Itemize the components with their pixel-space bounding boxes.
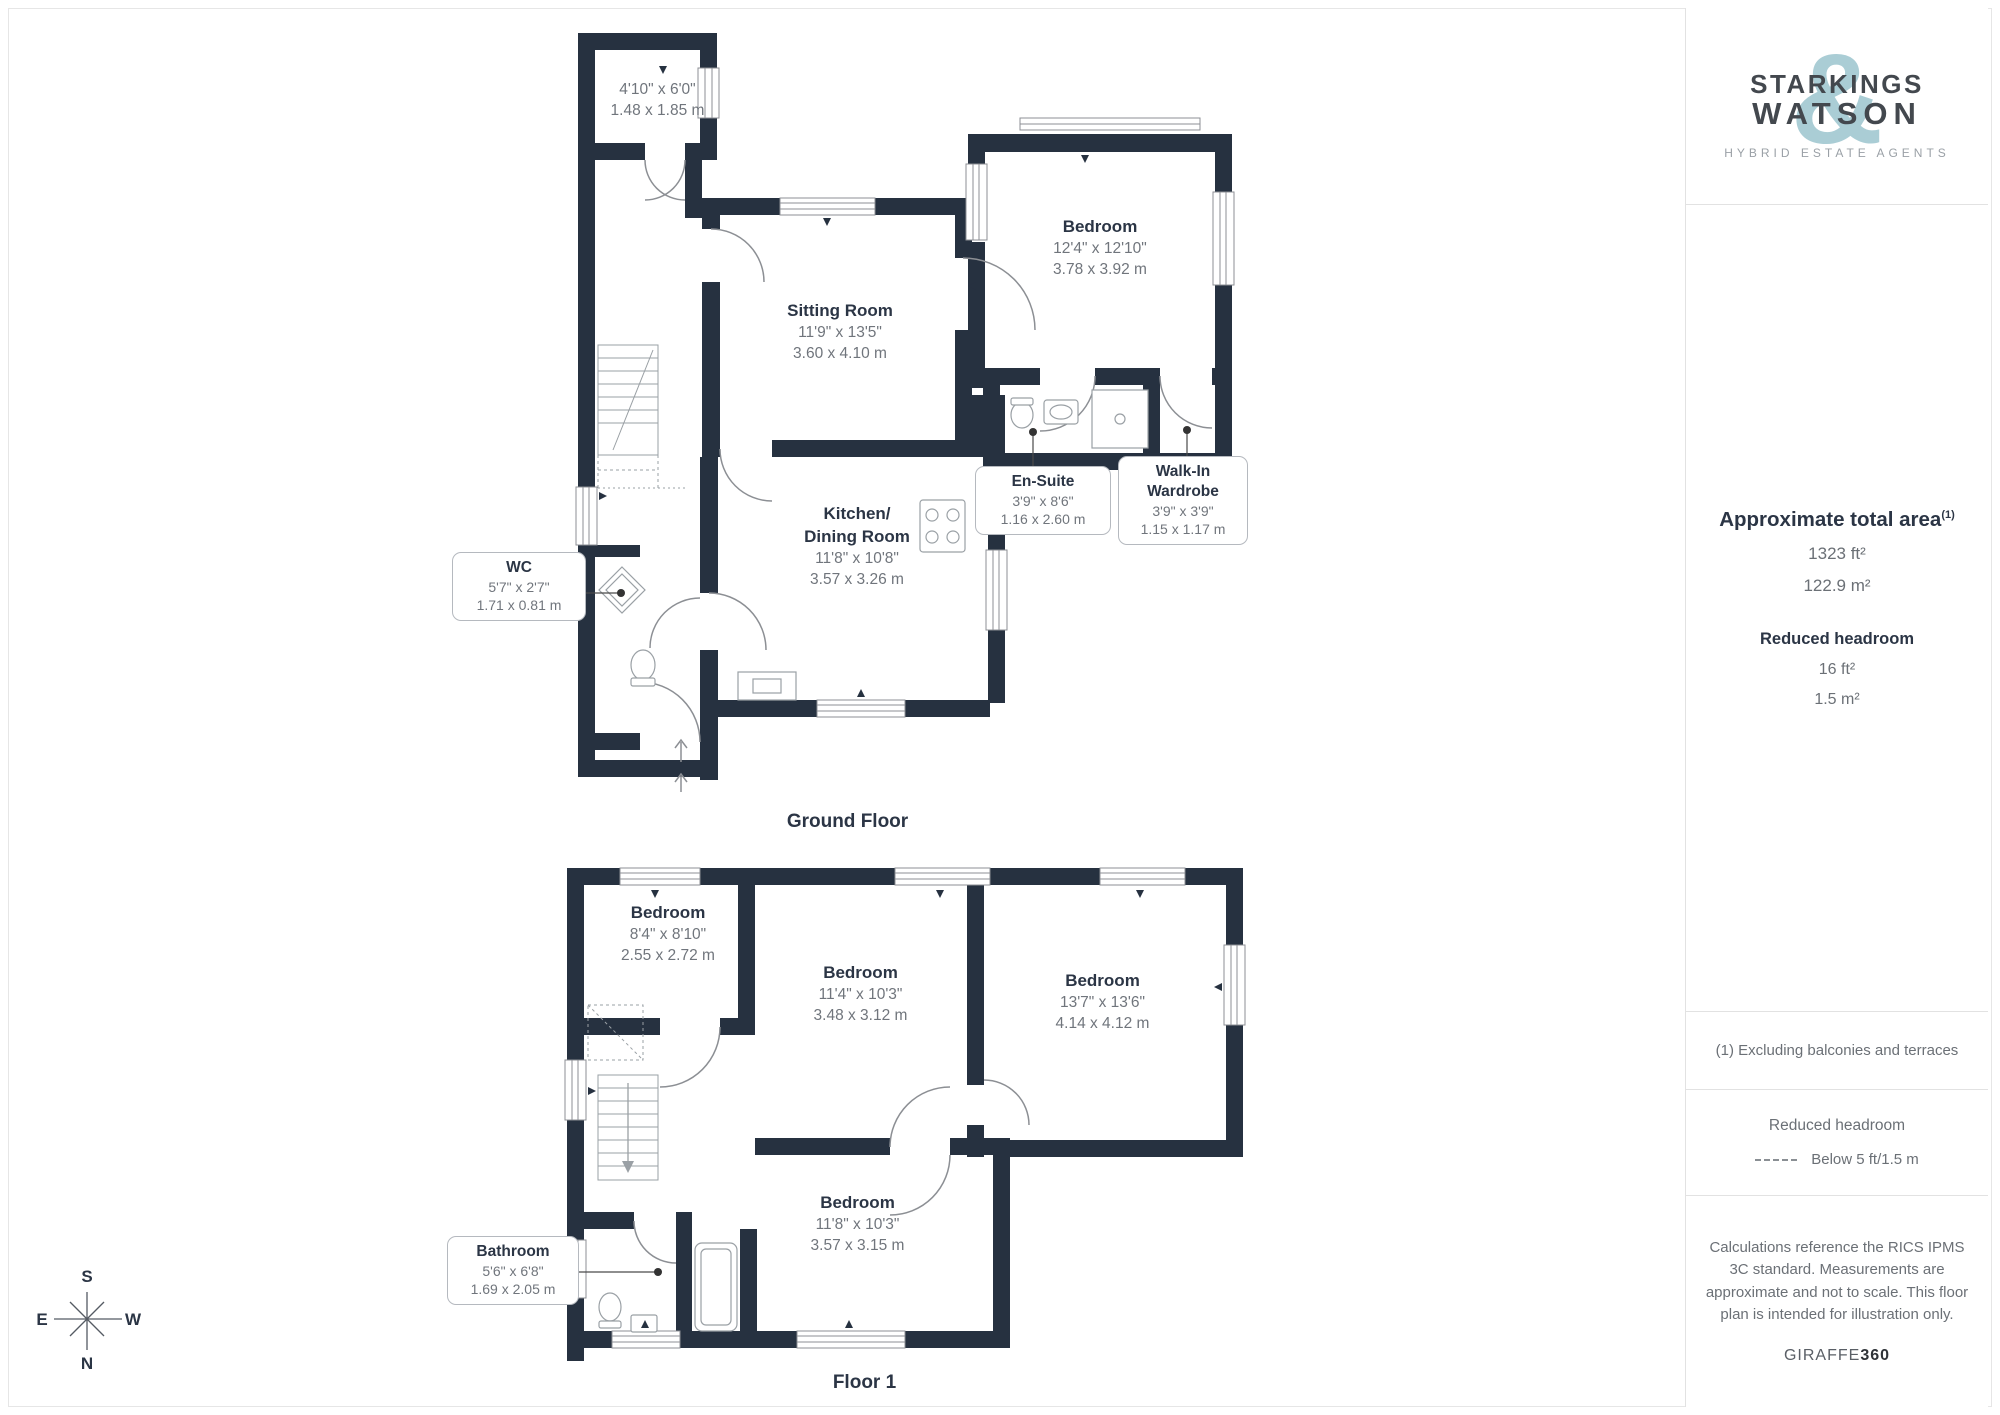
reduced-headroom-ft: 16 ft² — [1819, 661, 1855, 679]
ground-floor-plan — [565, 20, 1245, 795]
callout-en-suite: En-Suite 3'9" x 8'6" 1.16 x 2.60 m — [975, 466, 1111, 535]
legend-title: Reduced headroom — [1769, 1117, 1905, 1135]
staircase — [598, 345, 685, 488]
disclaimer-text: Calculations reference the RICS IPMS 3C … — [1701, 1237, 1973, 1327]
logo-line-2: WATSON — [1707, 96, 1967, 132]
compass-e: E — [36, 1310, 47, 1329]
disclaimer-section: Calculations reference the RICS IPMS 3C … — [1686, 1196, 1988, 1405]
footnote-section: (1) Excluding balconies and terraces — [1686, 1012, 1988, 1090]
compass-s: S — [81, 1267, 92, 1286]
area-ft: 1323 ft² — [1808, 544, 1866, 564]
legend-value: Below 5 ft/1.5 m — [1811, 1151, 1919, 1168]
room-label-bedroom-right: Bedroom 13'7" x 13'6" 4.14 x 4.12 m — [1010, 970, 1195, 1035]
callout-wc: WC 5'7" x 2'7" 1.71 x 0.81 m — [452, 552, 586, 621]
info-sidebar: & STARKINGS WATSON HYBRID ESTATE AGENTS … — [1685, 8, 1988, 1407]
logo-tagline: HYBRID ESTATE AGENTS — [1707, 146, 1967, 160]
area-title: Approximate total area(1) — [1719, 508, 1955, 532]
legend-row: Below 5 ft/1.5 m — [1755, 1151, 1919, 1168]
callout-walk-in-wardrobe: Walk-In Wardrobe 3'9" x 3'9" 1.15 x 1.17… — [1118, 456, 1248, 545]
fixtures — [599, 1243, 737, 1332]
area-section: Approximate total area(1) 1323 ft² 122.9… — [1686, 205, 1988, 1012]
reduced-headroom-m: 1.5 m² — [1814, 691, 1859, 709]
agency-logo: & STARKINGS WATSON HYBRID ESTATE AGENTS — [1707, 31, 1967, 181]
giraffe360-brand: GIRAFFE360 — [1784, 1347, 1890, 1365]
room-label-sitting-room: Sitting Room 11'9" x 13'5" 3.60 x 4.10 m — [745, 300, 935, 365]
compass-rose: S E W N — [30, 1262, 144, 1376]
room-label-kitchen: Kitchen/ Dining Room 11'8" x 10'8" 3.57 … — [762, 503, 952, 591]
room-label-bedroom-gf: Bedroom 12'4" x 12'10" 3.78 x 3.92 m — [1005, 216, 1195, 281]
floor-1-title: Floor 1 — [762, 1372, 967, 1394]
area-m: 122.9 m² — [1803, 576, 1870, 596]
area-footnote-ref: (1) — [1941, 509, 1954, 521]
room-label-store: 4'10" x 6'0" 1.48 x 1.85 m — [575, 80, 740, 122]
reduced-headroom-title: Reduced headroom — [1760, 630, 1914, 649]
footnote-text: (1) Excluding balconies and terraces — [1716, 1042, 1959, 1059]
callout-bathroom: Bathroom 5'6" x 6'8" 1.69 x 2.05 m — [447, 1236, 579, 1305]
room-label-bedroom-small: Bedroom 8'4" x 8'10" 2.55 x 2.72 m — [578, 902, 758, 967]
compass-w: W — [125, 1310, 142, 1329]
ground-floor-title: Ground Floor — [745, 811, 950, 833]
compass-n: N — [81, 1354, 93, 1373]
dashed-line-sample — [1755, 1159, 1797, 1161]
room-label-bedroom-mid: Bedroom 11'4" x 10'3" 3.48 x 3.12 m — [768, 962, 953, 1027]
logo-section: & STARKINGS WATSON HYBRID ESTATE AGENTS — [1686, 8, 1988, 205]
legend-section: Reduced headroom Below 5 ft/1.5 m — [1686, 1090, 1988, 1196]
room-label-bedroom-bottom: Bedroom 11'8" x 10'3" 3.57 x 3.15 m — [765, 1192, 950, 1257]
floorplan-page: 4'10" x 6'0" 1.48 x 1.85 m Sitting Room … — [0, 0, 2000, 1415]
